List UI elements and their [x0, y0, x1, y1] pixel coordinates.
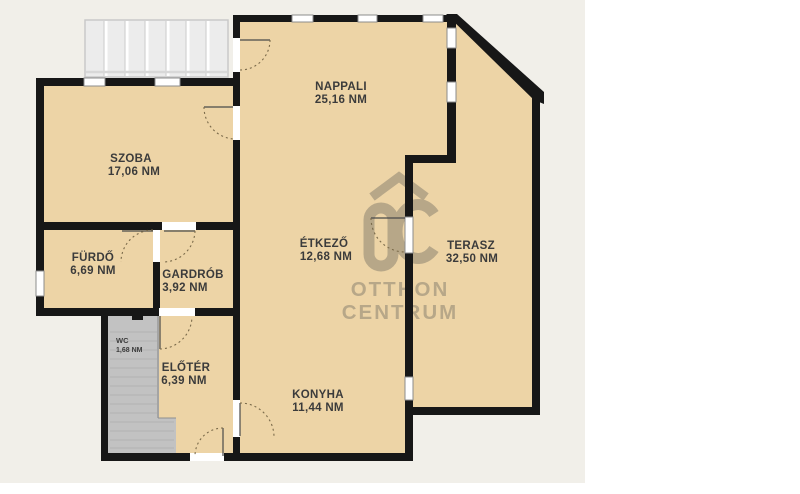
- exterior-stairs: [85, 20, 228, 77]
- watermark-line2: CENTRUM: [342, 301, 459, 324]
- svg-text:FÜRDŐ: FÜRDŐ: [72, 251, 114, 264]
- floor-plan-drawing: OTTHON CENTRUM: [0, 0, 800, 494]
- floor-main-and-terrace: [233, 15, 540, 461]
- svg-text:6,69 NM: 6,69 NM: [70, 265, 116, 277]
- svg-text:1,68 NM: 1,68 NM: [116, 347, 143, 354]
- svg-text:NAPPALI: NAPPALI: [315, 81, 367, 93]
- window: [155, 78, 180, 86]
- room-label-nappali: NAPPALI 25,16 NM: [315, 81, 367, 106]
- window: [292, 15, 313, 22]
- wc-jamb: [132, 308, 143, 320]
- window: [447, 82, 456, 102]
- window: [447, 28, 456, 48]
- terrace-dining-door: [405, 217, 413, 253]
- svg-text:KONYHA: KONYHA: [292, 389, 344, 401]
- svg-text:32,50 NM: 32,50 NM: [446, 253, 498, 265]
- floor-plan-page: OTTHON CENTRUM: [0, 0, 800, 494]
- svg-text:ÉTKEZŐ: ÉTKEZŐ: [300, 237, 348, 250]
- svg-text:TERASZ: TERASZ: [447, 240, 495, 252]
- svg-text:SZOBA: SZOBA: [110, 153, 152, 165]
- svg-text:17,06 NM: 17,06 NM: [108, 166, 160, 178]
- svg-text:25,16 NM: 25,16 NM: [315, 94, 367, 106]
- svg-text:11,44 NM: 11,44 NM: [292, 402, 344, 414]
- room-label-konyha: KONYHA 11,44 NM: [292, 389, 344, 414]
- window: [358, 15, 377, 22]
- svg-text:WC: WC: [116, 336, 129, 345]
- terrace-kitchen-window: [405, 377, 413, 400]
- window: [423, 15, 443, 22]
- svg-text:12,68 NM: 12,68 NM: [300, 251, 352, 263]
- watermark-line1: OTTHON: [351, 278, 450, 301]
- window: [36, 271, 44, 296]
- svg-text:6,39 NM: 6,39 NM: [161, 375, 207, 387]
- window: [84, 78, 105, 86]
- svg-text:ELŐTÉR: ELŐTÉR: [162, 361, 211, 374]
- room-label-terasz: TERASZ 32,50 NM: [446, 240, 498, 265]
- svg-text:GARDRÓB: GARDRÓB: [162, 268, 224, 281]
- svg-text:3,92 NM: 3,92 NM: [162, 282, 208, 294]
